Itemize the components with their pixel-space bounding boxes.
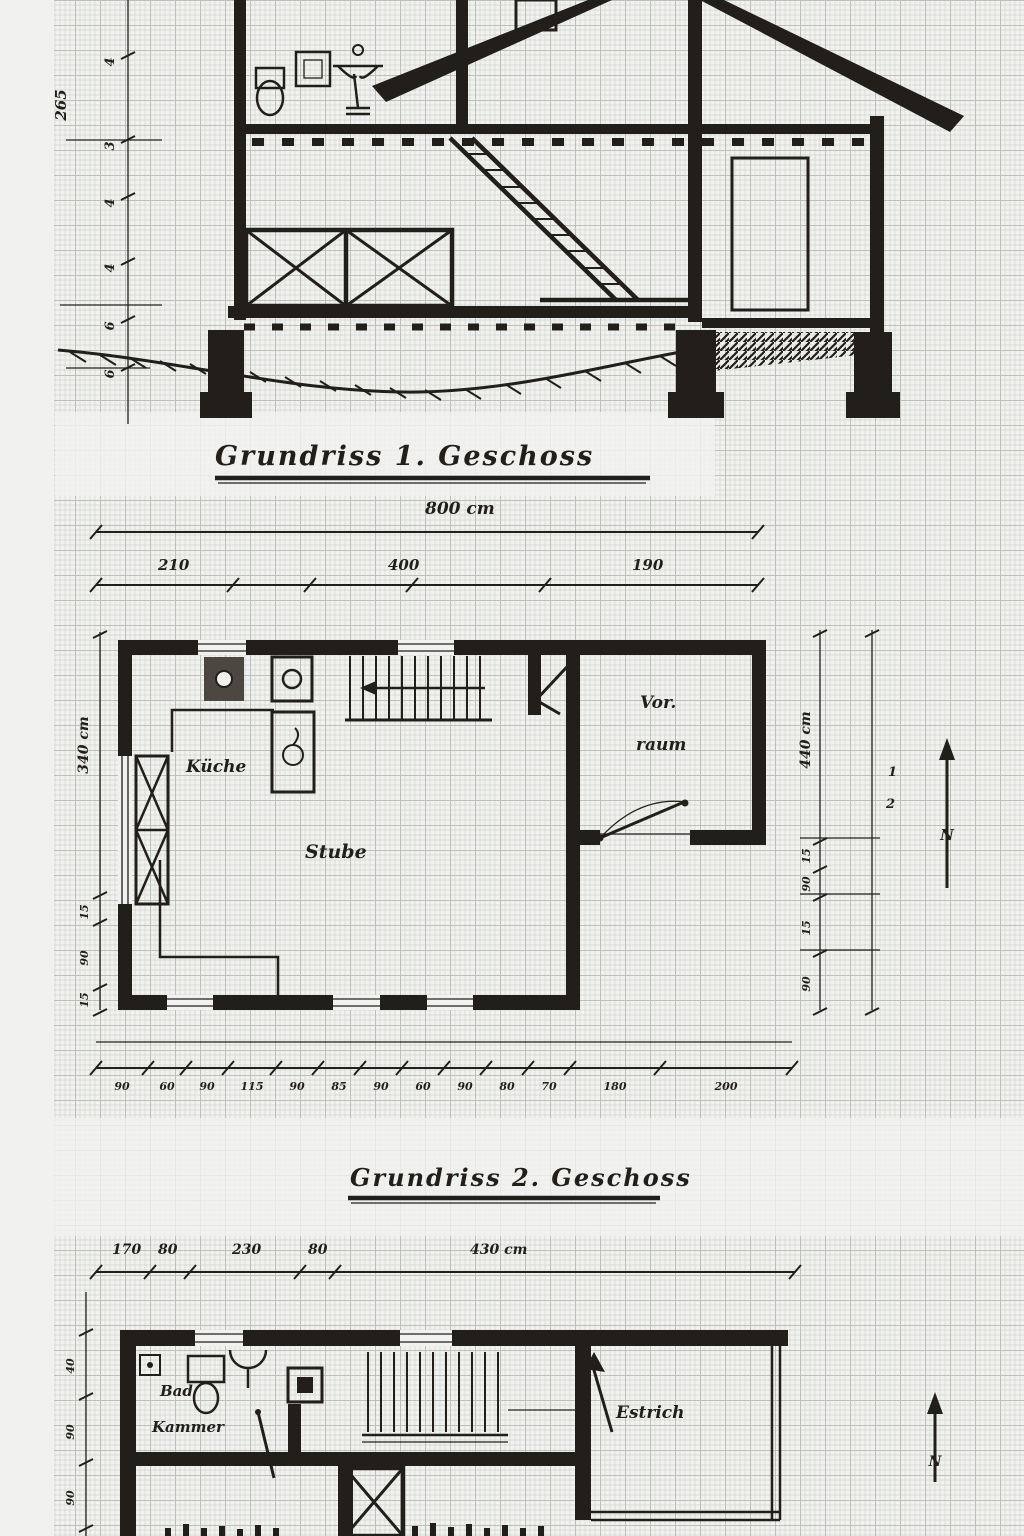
section-dim-value: 6	[103, 321, 118, 330]
window-gap	[427, 995, 473, 1010]
plan2-mid-wall	[338, 1452, 591, 1466]
section-dim-value: 4	[103, 57, 118, 66]
dim-value: 90	[800, 876, 813, 892]
dim-value: 340 cm	[76, 716, 92, 773]
dim-value: 15	[800, 920, 813, 935]
bath-door-hinge	[255, 1409, 261, 1415]
dim-value: 60	[415, 1080, 431, 1093]
window-gap	[167, 995, 213, 1010]
dim-value: 40	[64, 1358, 77, 1374]
dim-value: 80	[308, 1242, 328, 1258]
dim-value: 170	[112, 1242, 141, 1258]
dim-value: 80	[158, 1242, 178, 1258]
scanned-house-plan-page: 4 3 4 4 6 6 265	[0, 0, 1024, 1536]
shower-drain	[147, 1362, 153, 1368]
dim-value: 180	[604, 1080, 627, 1093]
plan1-vorraum-bottom-wall-b	[690, 830, 766, 845]
window-gap	[195, 1330, 243, 1346]
dim-value: 90	[457, 1080, 473, 1093]
section-eave-post	[870, 116, 884, 332]
window-gap	[198, 640, 246, 655]
window-gap	[333, 995, 380, 1010]
dim-note: 1	[888, 765, 897, 780]
north-label: N	[928, 1454, 943, 1470]
architectural-drawing: 4 3 4 4 6 6 265	[0, 0, 1024, 1536]
sink-basin-icon	[216, 671, 232, 687]
dim-note: 2	[885, 797, 895, 812]
section-height-label: 265	[52, 89, 70, 121]
section-dim-value: 3	[103, 141, 118, 150]
window-gap	[118, 756, 132, 904]
dim-value: 115	[241, 1080, 264, 1093]
section-right-slab	[702, 318, 884, 328]
plan1-total-width: 800 cm	[424, 499, 495, 519]
dim-value: 440 cm	[798, 711, 814, 768]
dim-value: 90	[289, 1080, 305, 1093]
pier-base	[200, 392, 252, 418]
dim-value: 15	[78, 904, 91, 919]
dim-value: 430 cm	[470, 1242, 527, 1258]
plan1-hall-label-2: raum	[636, 735, 686, 755]
pier	[208, 330, 244, 392]
plan1-seg-value: 210	[157, 556, 190, 574]
pier-base	[668, 392, 724, 418]
dim-value: 70	[541, 1080, 557, 1093]
left-margin	[0, 0, 54, 1536]
dim-value: 90	[64, 1490, 77, 1506]
dim-value: 90	[78, 950, 91, 966]
plan1-vorraum-right-wall	[752, 640, 766, 845]
plan1-door-jamb	[528, 655, 541, 715]
section-upper-floor-slab	[234, 124, 884, 134]
window-gap	[398, 640, 454, 655]
plan2-bath-label-2: Kammer	[151, 1418, 225, 1436]
section-dim-value: 6	[103, 369, 118, 378]
dim-value: 90	[199, 1080, 215, 1093]
dim-value: 90	[114, 1080, 130, 1093]
plan1-vorraum-bottom-wall-a	[566, 830, 600, 845]
pier-base	[846, 392, 900, 418]
dim-value: 90	[800, 976, 813, 992]
plan1-seg-value: 190	[632, 556, 664, 574]
plan2-bath-inner-wall	[288, 1404, 301, 1452]
section-dim-value: 4	[103, 198, 118, 207]
dim-value: 85	[331, 1080, 346, 1093]
dim-value: 15	[800, 848, 813, 863]
dim-value: 230	[231, 1242, 261, 1258]
plan2-bath-bottom-wall	[120, 1452, 352, 1466]
plan2-left-wall	[120, 1330, 136, 1536]
section-right-wall	[688, 0, 702, 322]
chimney-inner	[297, 1377, 313, 1393]
door-hinge	[597, 835, 604, 842]
section-dim-value: 4	[103, 263, 118, 272]
door-latch	[682, 800, 689, 807]
section-lower-floor-slab	[228, 306, 702, 318]
plan1-seg-value: 400	[388, 556, 420, 574]
dim-value: 200	[714, 1080, 738, 1093]
plan1-living-label: Stube	[305, 841, 367, 863]
plan1-kitchen-label: Küche	[185, 757, 246, 777]
dim-value: 90	[64, 1424, 77, 1440]
plan2-attic-left-wall	[575, 1346, 591, 1520]
dim-value: 60	[159, 1080, 175, 1093]
dim-value: 90	[373, 1080, 389, 1093]
plan2-title: Grundriss 2. Geschoss	[350, 1163, 692, 1192]
plan2-bath-label-1: Bad	[159, 1382, 193, 1400]
window-gap	[400, 1330, 452, 1346]
plan1-main-right-wall	[566, 640, 580, 1010]
plan2-attic-label: Estrich	[615, 1403, 685, 1423]
dim-value: 15	[78, 992, 91, 1007]
dim-value: 80	[499, 1080, 515, 1093]
plan1-hall-label-1: Vor.	[640, 693, 676, 713]
plan1-title: Grundriss 1. Geschoss	[215, 441, 594, 472]
north-label: N	[939, 826, 955, 844]
